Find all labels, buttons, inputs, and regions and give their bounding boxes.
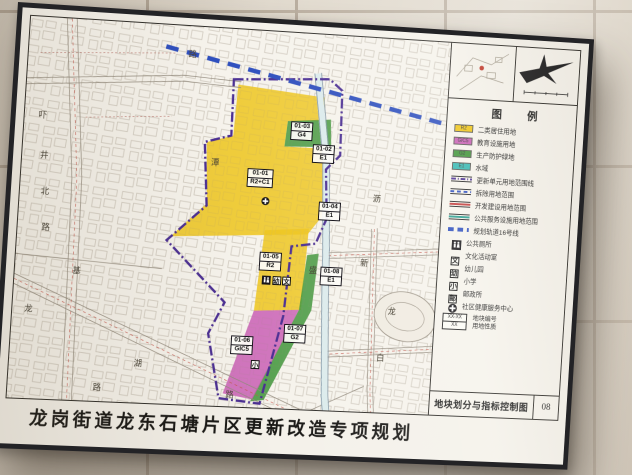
plot-label-01-06: 01-06 GIC5 [230,335,254,355]
plot-code: E1 [320,275,341,285]
health-center-icon [261,196,270,205]
unit-boundary-line-sample [451,175,472,183]
road-label: 路 [41,221,50,233]
development-line-sample [449,200,470,208]
plot-id: 01-03 [292,122,313,131]
site-marker [479,66,484,71]
education-swatch: GIC5 [453,137,472,146]
plot-code: G2 [284,333,305,343]
legend: 图 例 R2 二类居住用地 GIC5 教育设施用地 G2 生产防护绿地 [430,98,577,395]
plot-code: E1 [319,210,340,220]
road-label: 潭 [211,156,220,168]
road-label: 龙 [24,302,33,314]
plot-label-01-03: 01-03 G4 [290,121,314,141]
road-label: 吓 [38,108,47,120]
plot-01-05-icons: 幼 文 [262,276,291,286]
sheet-name: 地块划分与指标控制图 [429,391,534,419]
plot-code: R2+C1 [248,177,273,187]
landuse-type-label: 用地性质 [472,322,497,331]
road-label: 基 [72,264,81,276]
road-label: 龙 [387,305,396,317]
north-compass-icon [519,53,574,86]
plot-id: 01-07 [285,325,306,334]
road-label: 北 [40,185,49,197]
legend-header: 图 例 [455,104,574,127]
road-label: 湖 [133,357,142,369]
compass-box [513,47,581,105]
map-area: 01-01 R2+C1 01-03 G4 [7,16,452,415]
green-swatch: G2 [453,149,472,158]
road-label: 路 [188,48,197,60]
demolition-line-sample [450,188,471,196]
metro-line-sample [448,227,469,232]
plot-01-06-icons: 小 [250,360,259,369]
plot-label-01-04: 01-04 E1 [318,202,342,222]
plot-label-01-07: 01-07 G2 [283,324,307,344]
plot-number-sample-box: XX-XX XX [442,313,468,331]
plot-code: G4 [291,130,312,140]
residential-swatch: R2 [454,124,473,133]
plot-id: 01-04 [319,203,340,212]
plot-id: 01-08 [321,268,342,277]
road-label: 路 [225,389,234,401]
photo-of-planning-board: 01-01 R2+C1 01-03 G4 [0,0,632,475]
plot-01-01-icons [261,196,270,205]
plot-label-01-08: 01-08 E1 [319,267,343,287]
kindergarten-icon: 幼 [272,276,281,285]
plot-label-01-02: 01-02 E1 [312,144,336,164]
plot-id: 01-05 [260,253,281,262]
road-label: 白 [376,352,385,364]
plot-label-01-01: 01-01 R2+C1 [246,168,273,188]
plot-id: 01-02 [313,145,334,154]
plot-id: 01-06 [232,336,253,345]
road-label: 路 [92,381,101,393]
plan-sheet: 01-01 R2+C1 01-03 G4 [0,7,589,464]
right-panel: 图 例 R2 二类居住用地 GIC5 教育设施用地 G2 生产防护绿地 [428,43,580,420]
content-frame: 01-01 R2+C1 01-03 G4 [5,15,581,421]
public-service-line-sample [449,213,470,221]
sheet-number: 08 [532,396,559,420]
road-label: 新 [360,257,369,269]
primary-school-icon: 小 [250,360,259,369]
plot-code: GIC5 [231,344,252,354]
health-center-icon [447,303,457,313]
top-boxes [449,43,581,106]
location-inset-map [449,43,516,101]
public-toilet-icon [451,240,461,250]
legend-item-plot-note: XX-XX XX 地块编号 用地性质 [442,313,561,335]
sheet-title-block: 地块划分与指标控制图 08 [429,390,559,420]
planning-board: 01-01 R2+C1 01-03 G4 [0,2,594,470]
road-label: 盛 [309,264,318,276]
plot-label-01-05: 01-05 R2 [259,252,283,272]
road-label: 井 [40,149,49,161]
plot-id: 01-01 [248,169,273,178]
water-swatch: E1 [452,162,471,171]
public-toilet-icon [262,276,271,285]
culture-room-icon: 文 [282,277,291,286]
plot-code: E1 [313,153,334,163]
plot-code: R2 [260,261,281,271]
road-label: 沥 [373,193,382,205]
